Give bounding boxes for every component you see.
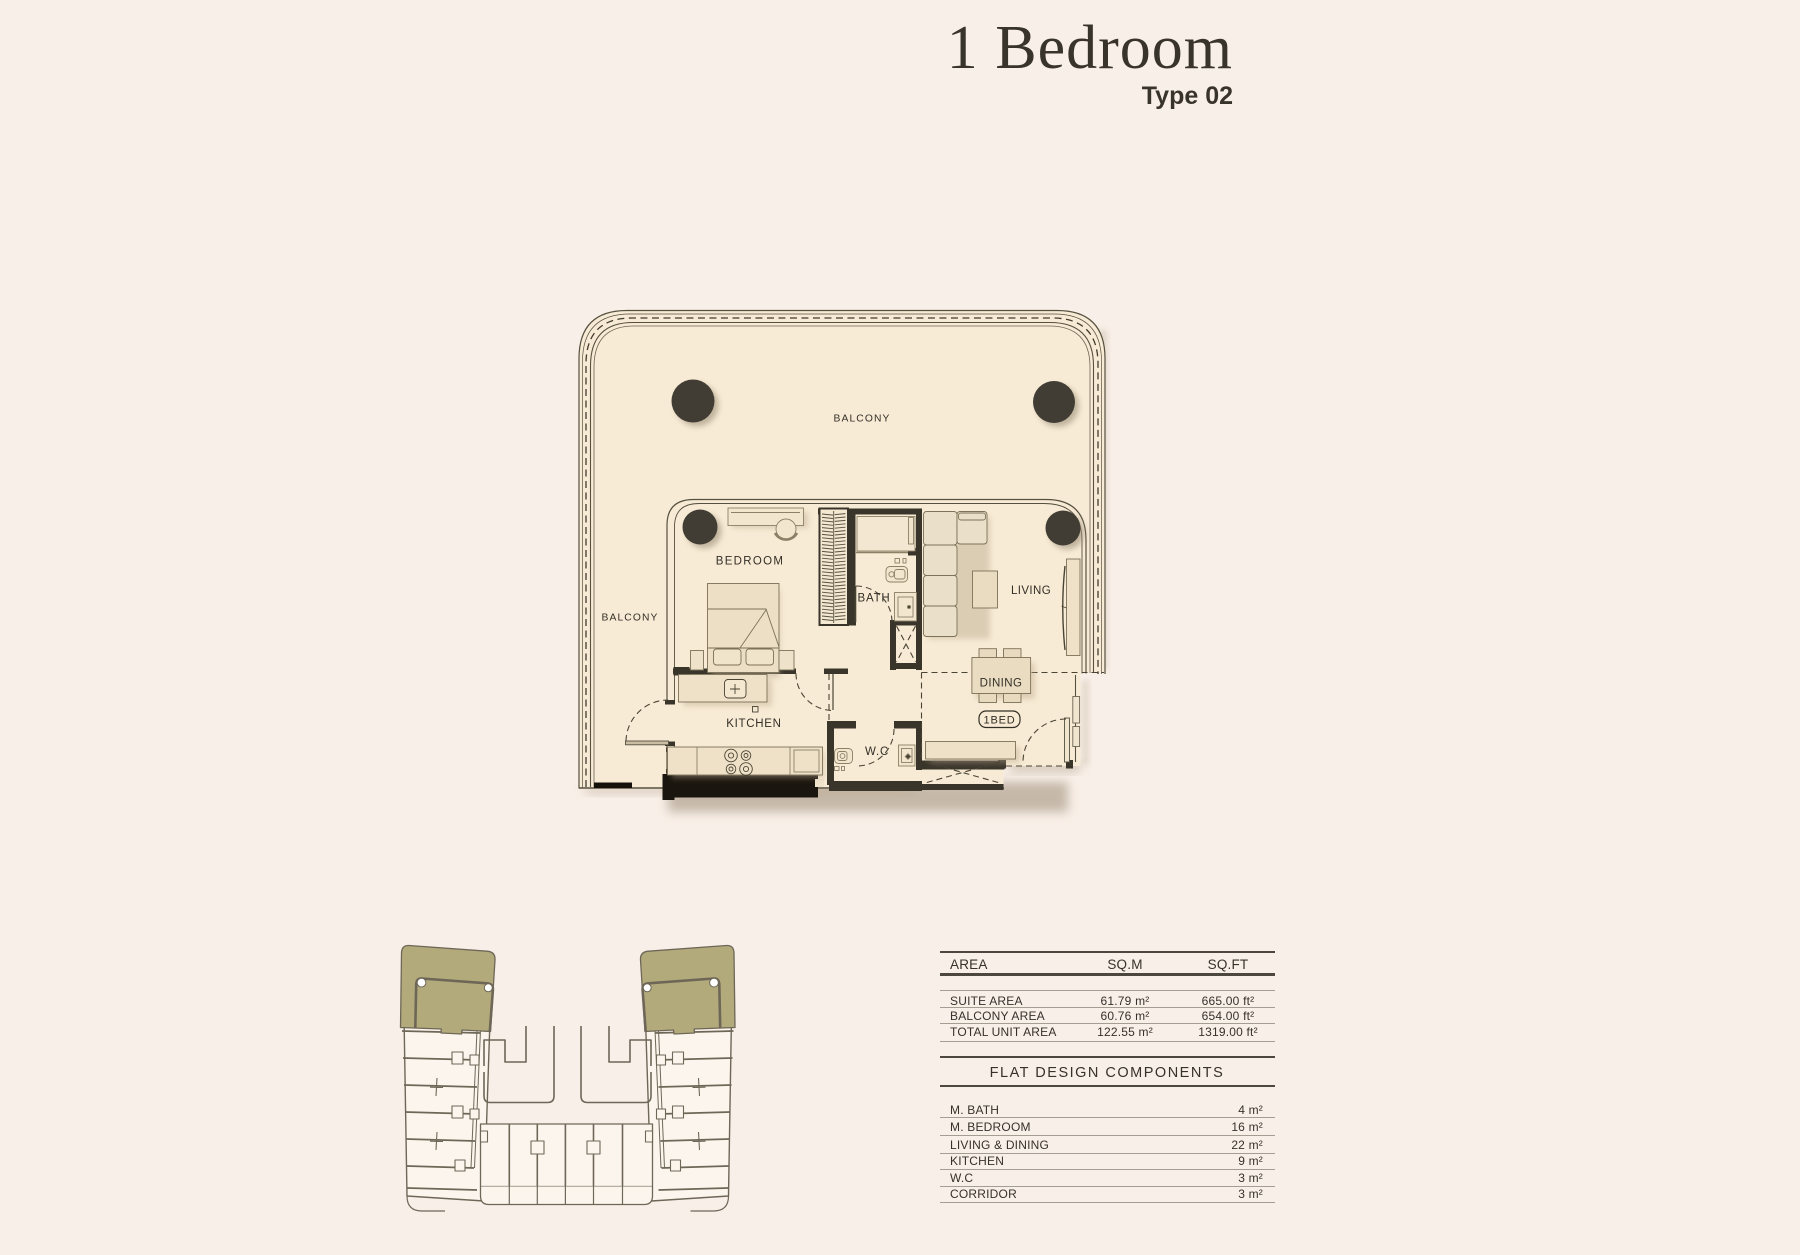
svg-text:1BED: 1BED [984, 715, 1016, 727]
svg-text:KITCHEN: KITCHEN [726, 718, 781, 730]
svg-text:BATH: BATH [857, 593, 890, 605]
svg-text:BALCONY: BALCONY [602, 613, 659, 624]
svg-text:W.C: W.C [865, 746, 889, 758]
svg-text:BALCONY: BALCONY [834, 414, 891, 425]
svg-text:LIVING: LIVING [1011, 585, 1051, 597]
svg-text:DINING: DINING [980, 678, 1023, 690]
svg-text:BEDROOM: BEDROOM [716, 556, 785, 568]
